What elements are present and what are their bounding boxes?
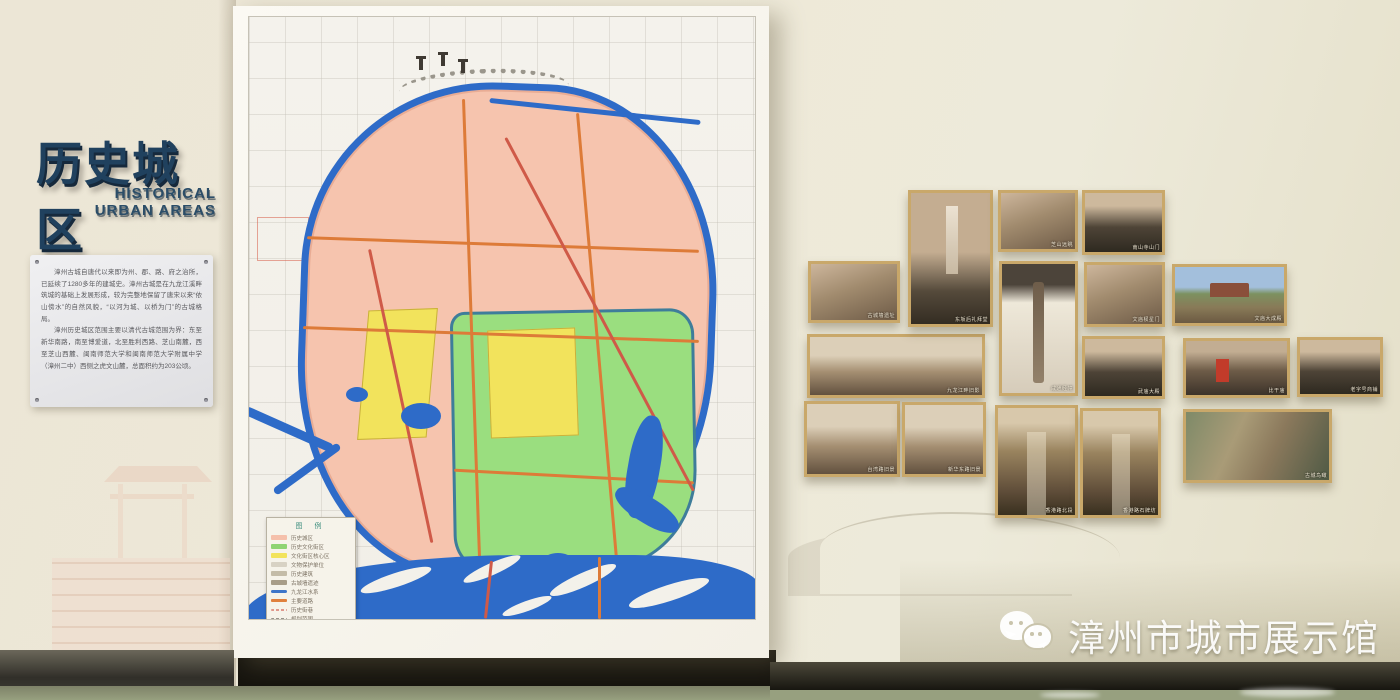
- legend-row: 古城墙遗迹: [271, 578, 351, 587]
- description-plaque: 漳州古城自唐代以来即为州、郡、路、府之治所，已延续了1280多年的建城史。漳州古…: [30, 255, 213, 407]
- mural-column: [118, 484, 123, 558]
- photo-caption: 文庙大成殿: [1254, 315, 1282, 322]
- map-pagoda-icon: [461, 62, 465, 73]
- framed-photo-river-panorama: 九龙江畔旧影: [807, 334, 985, 398]
- framed-photo-temple-sky: 文庙大成殿: [1172, 264, 1287, 326]
- photo-image: [911, 193, 990, 324]
- legend-row: 历史建筑: [271, 569, 351, 578]
- title-en-line2: URBAN AREAS: [95, 202, 216, 219]
- legend-label: 九龙江水系: [291, 588, 319, 596]
- framed-photo-stone-pillar: 咸通经幢: [999, 261, 1078, 396]
- legend-row: 文化街区核心区: [271, 551, 351, 560]
- photo-caption: 比干庙: [1268, 387, 1285, 394]
- framed-photo-old-shop: 老字号商铺: [1297, 337, 1383, 397]
- wechat-eye: [1030, 632, 1034, 636]
- photo-caption: 古城墙遗址: [867, 312, 895, 319]
- plaque-screw: [35, 260, 39, 264]
- photo-image: [998, 408, 1075, 515]
- photo-caption: 台湾路旧景: [867, 466, 895, 473]
- framed-photo-temple-roof: 文庙棂星门: [1084, 262, 1165, 327]
- legend-row: 九龙江水系: [271, 587, 351, 596]
- map-pond: [401, 403, 441, 429]
- legend-swatch: [271, 571, 287, 576]
- photo-caption: 香港路石牌坊: [1123, 507, 1156, 514]
- wechat-eye: [1019, 621, 1023, 625]
- legend-row: 历史街巷: [271, 605, 351, 614]
- legend-label: 主要道路: [291, 597, 313, 605]
- plaque-screw: [204, 260, 208, 264]
- wechat-icon: [1000, 611, 1056, 659]
- framed-photo-temple-gate: 南山寺山门: [1082, 190, 1165, 255]
- legend-label: 历史街巷: [291, 606, 313, 614]
- photo-caption: 古城鸟瞰: [1305, 472, 1327, 479]
- framed-photo-church: 东坂后礼拜堂: [908, 190, 993, 327]
- plaque-screw: [35, 398, 39, 402]
- map-core-zone-east: [487, 327, 579, 438]
- legend-title: 图 例: [271, 521, 351, 531]
- wechat-eye: [1009, 621, 1013, 625]
- legend-row: 历史城区: [271, 533, 351, 542]
- photo-caption: 咸通经幢: [1051, 385, 1073, 392]
- legend-row: 规划范围: [271, 614, 351, 620]
- mural-roof: [104, 466, 212, 482]
- photo-caption: 九龙江畔旧影: [947, 387, 980, 394]
- legend-label: 历史文化街区: [291, 543, 324, 551]
- photo-image: [1083, 411, 1158, 515]
- floor-reflection: [1040, 692, 1100, 698]
- map-legend: 图 例 历史城区 历史文化街区 文化街区核心区 文物保护单位 历史建筑 古城墙遗…: [266, 517, 356, 620]
- photo-image: [807, 404, 897, 474]
- framed-photo-temple-hall: 武庙大殿: [1082, 336, 1165, 399]
- legend-label: 历史建筑: [291, 570, 313, 578]
- photo-caption: 新华东路旧景: [948, 466, 981, 473]
- legend-row: 文物保护单位: [271, 560, 351, 569]
- map-pagoda-icon: [419, 59, 423, 70]
- map-pond: [346, 387, 368, 402]
- title-en-line1: HISTORICAL: [115, 185, 216, 202]
- wechat-eye: [1038, 632, 1042, 636]
- legend-label: 古城墙遗迹: [291, 579, 319, 587]
- mural-column: [182, 484, 187, 558]
- plaque-screw: [204, 398, 208, 402]
- mural-stone-wall: [52, 558, 230, 658]
- baseboard: [770, 662, 1400, 690]
- legend-label: 历史城区: [291, 534, 313, 542]
- historic-city-map: 图 例 历史城区 历史文化街区 文化街区核心区 文物保护单位 历史建筑 古城墙遗…: [248, 16, 756, 620]
- photo-caption: 老字号商铺: [1350, 386, 1378, 393]
- watermark-text: 漳州市城市展示馆: [1068, 608, 1380, 662]
- framed-photo-old-street-tower: 香港路北段: [995, 405, 1078, 518]
- legend-swatch: [271, 562, 287, 567]
- legend-swatch: [271, 535, 287, 540]
- legend-swatch-line: [271, 599, 287, 602]
- wall-mural-pavilion: [52, 466, 230, 658]
- framed-photo-street-2: 新华东路旧景: [902, 402, 986, 477]
- photo-caption: 南山寺山门: [1132, 244, 1160, 251]
- framed-photo-red-door-temple: 比干庙: [1183, 338, 1290, 398]
- floor-reflection: [1240, 688, 1335, 697]
- map-pagoda-icon: [441, 55, 445, 66]
- section-title-english: HISTORICAL URBAN AREAS: [50, 186, 216, 219]
- legend-label: 文化街区核心区: [291, 552, 330, 560]
- photo-caption: 东坂后礼拜堂: [955, 316, 988, 323]
- legend-label: 文物保护单位: [291, 561, 324, 569]
- legend-swatch-dash: [271, 609, 287, 611]
- legend-swatch: [271, 544, 287, 549]
- photo-caption: 香港路北段: [1045, 507, 1073, 514]
- plaque-paragraph-2: 漳州历史城区范围主要以清代古城范围为界：东至新华南路，南至博爱道，北至胜利西路、…: [41, 325, 202, 372]
- map-bridge: [599, 557, 602, 619]
- legend-row: 主要道路: [271, 596, 351, 605]
- photo-caption: 芝山远眺: [1051, 241, 1073, 248]
- framed-photo-street-1: 台湾路旧景: [804, 401, 900, 477]
- wechat-bubble-small: [1022, 623, 1053, 650]
- legend-row: 历史文化街区: [271, 542, 351, 551]
- historic-city-map-board: 图 例 历史城区 历史文化街区 文化街区核心区 文物保护单位 历史建筑 古城墙遗…: [233, 6, 769, 658]
- photo-image: [1186, 412, 1329, 480]
- legend-swatch-dash: [271, 618, 287, 620]
- photo-caption: 文庙棂星门: [1132, 316, 1160, 323]
- wechat-watermark: 漳州市城市展示馆: [1000, 608, 1380, 662]
- framed-photo-memorial-arch: 香港路石牌坊: [1080, 408, 1161, 518]
- framed-photo-aerial-city: 古城鸟瞰: [1183, 409, 1332, 483]
- legend-swatch-wave: [271, 590, 287, 593]
- legend-swatch: [271, 580, 287, 585]
- framed-photo-hill-view: 芝山远眺: [998, 190, 1078, 252]
- legend-label: 规划范围: [291, 615, 313, 621]
- legend-swatch: [271, 553, 287, 558]
- framed-photo-ruins: 古城墙遗址: [808, 261, 900, 323]
- photo-caption: 武庙大殿: [1138, 388, 1160, 395]
- photo-image: [1002, 264, 1075, 393]
- photo-image: [905, 405, 983, 474]
- exhibition-room-photo: 历史城区 HISTORICAL URBAN AREAS 漳州古城自唐代以来即为州…: [0, 0, 1400, 700]
- plaque-paragraph-1: 漳州古城自唐代以来即为州、郡、路、府之治所，已延续了1280多年的建城史。漳州古…: [41, 267, 202, 325]
